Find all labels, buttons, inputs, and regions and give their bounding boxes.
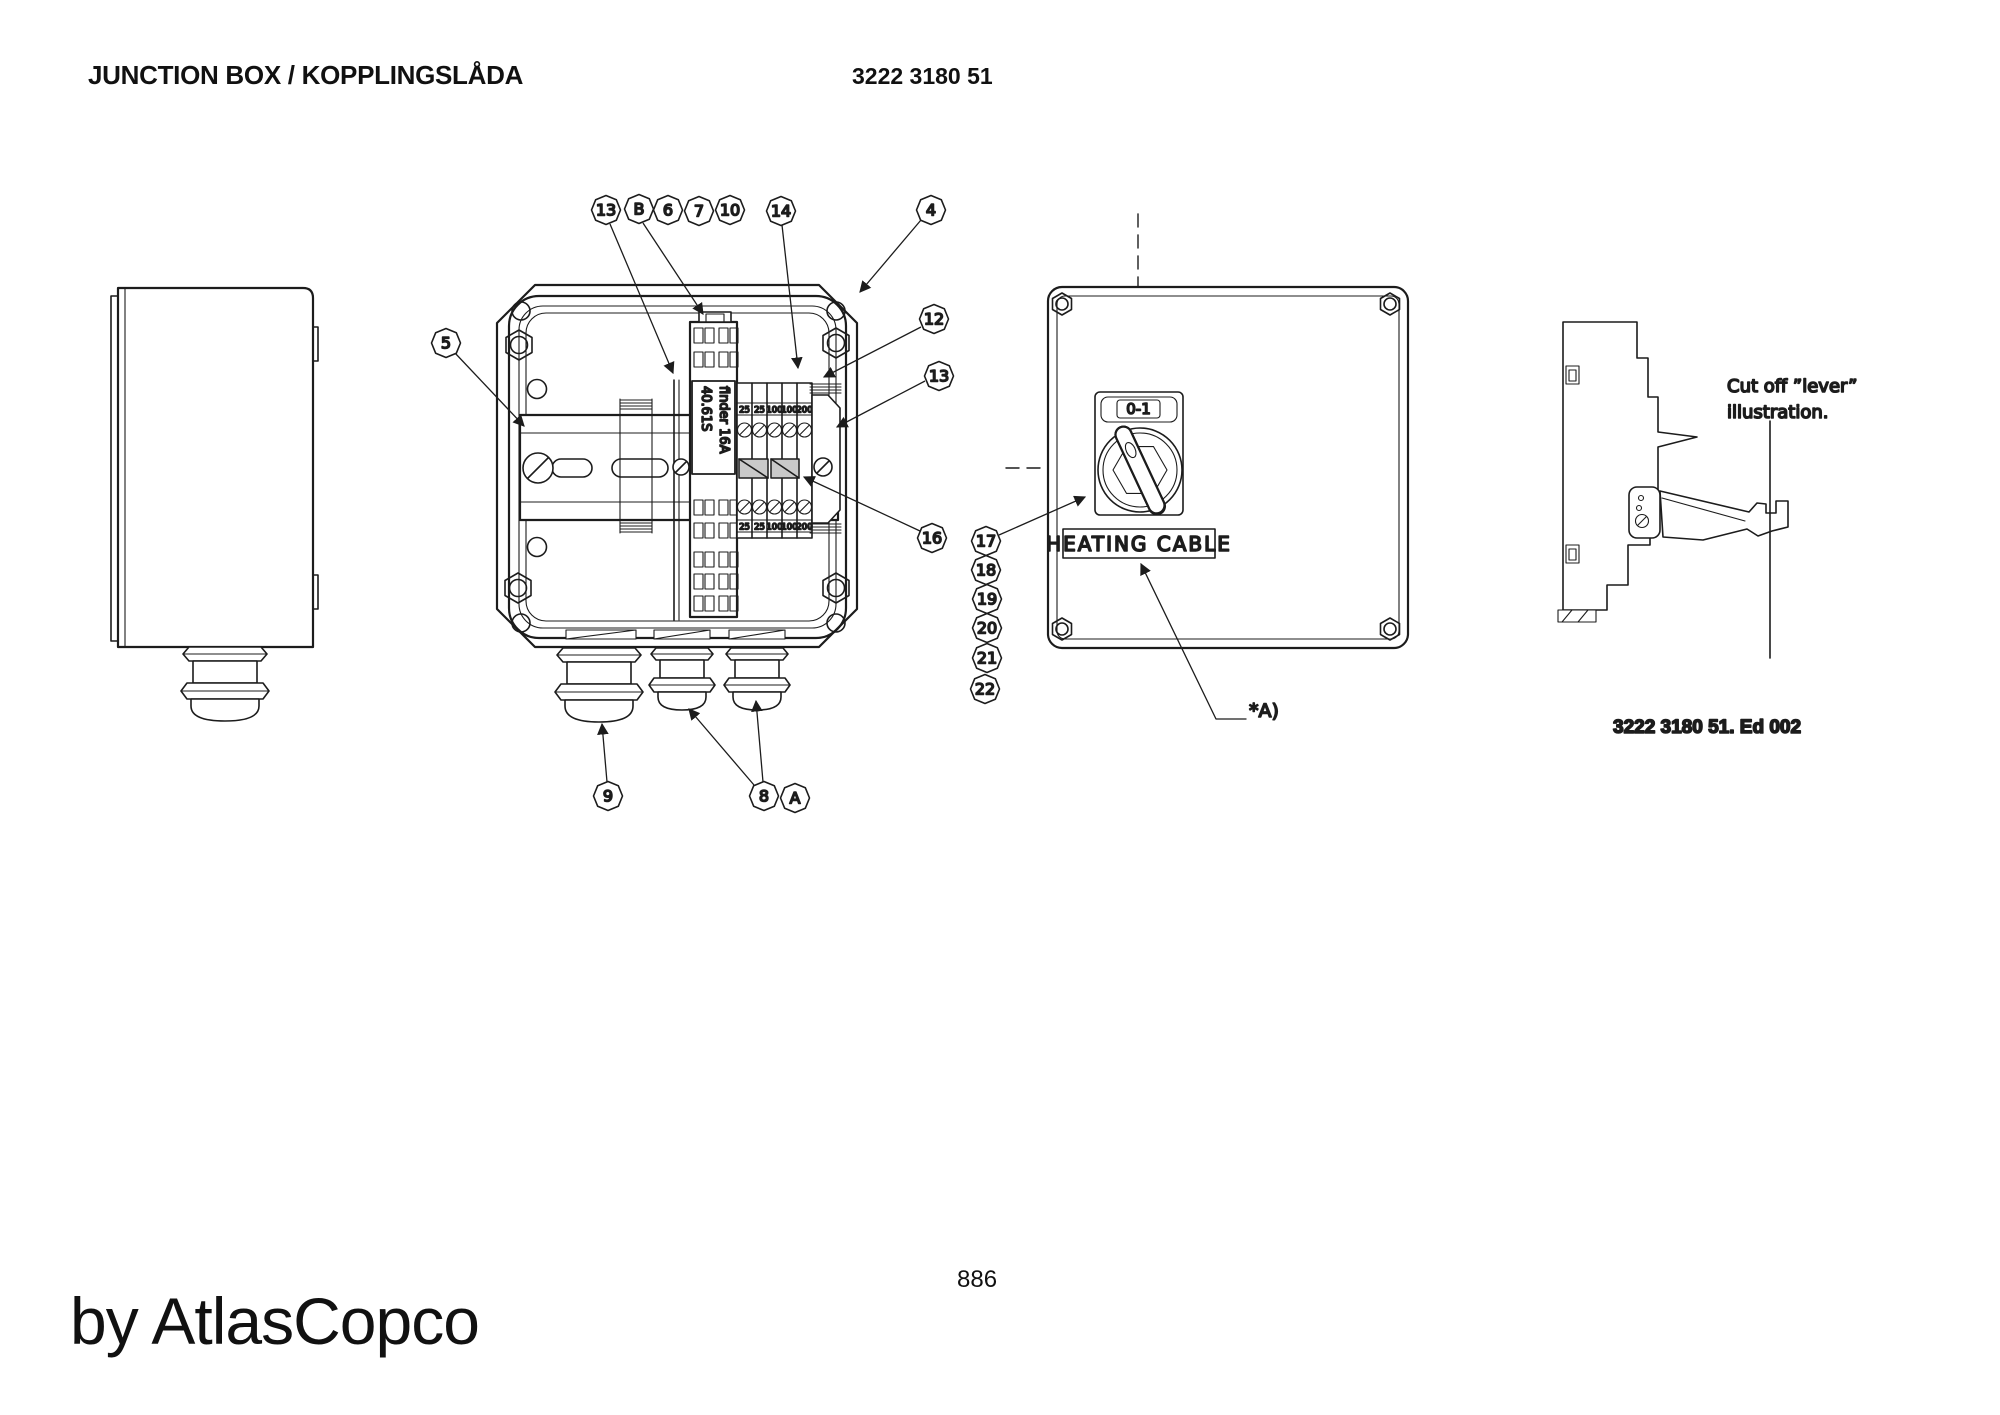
- svg-text:14: 14: [771, 202, 791, 221]
- svg-text:19: 19: [977, 590, 997, 609]
- svg-text:5: 5: [441, 334, 451, 353]
- terminal-label: 200: [796, 406, 812, 416]
- footnote-ref: *A): [1249, 700, 1279, 722]
- box-side-face: [118, 288, 313, 647]
- callout-21: 21: [973, 644, 1002, 673]
- front-view: 0-1 HEATING CABLE *A): [1006, 214, 1408, 722]
- terminal-label: 25: [739, 406, 750, 416]
- svg-text:20: 20: [977, 619, 997, 638]
- callout-12: 12: [920, 305, 949, 334]
- release-lever: [1629, 487, 1788, 540]
- leader-9: [602, 724, 607, 782]
- callout-14: 14: [767, 197, 796, 226]
- callout-B: B: [625, 195, 654, 224]
- leader-4: [860, 220, 921, 292]
- side-view: [111, 288, 318, 721]
- terminal-label: 100: [766, 406, 782, 416]
- jumper: [739, 459, 768, 478]
- callout-7: 7: [685, 197, 714, 226]
- callout-13b: 13: [925, 362, 954, 391]
- callout-13: 13: [592, 196, 621, 225]
- svg-text:7: 7: [694, 202, 704, 221]
- terminal-label: 25: [754, 523, 765, 533]
- terminal-label: 100: [781, 523, 797, 533]
- callout-8: 8: [750, 782, 779, 811]
- switch-label: 0-1: [1126, 400, 1151, 418]
- svg-text:12: 12: [924, 310, 944, 329]
- terminal-label: 25: [739, 523, 750, 533]
- callout-16: 16: [918, 524, 947, 553]
- svg-text:21: 21: [977, 649, 997, 668]
- callout-19: 19: [973, 585, 1002, 614]
- relay-socket-profile: [1563, 322, 1697, 610]
- open-box-view: finder 16A 40.61S: [497, 285, 857, 722]
- svg-text:8: 8: [759, 787, 769, 806]
- svg-text:22: 22: [975, 680, 995, 699]
- relay-label-line1: finder 16A: [716, 386, 731, 454]
- svg-text:9: 9: [603, 787, 613, 806]
- relay-label-line2: 40.61S: [698, 386, 713, 431]
- callout-22: 22: [971, 675, 1000, 704]
- callout-9: 9: [594, 782, 623, 811]
- terminal-label: 100: [781, 406, 797, 416]
- svg-text:6: 6: [663, 201, 673, 220]
- relay-base-screw: [673, 459, 689, 475]
- svg-text:4: 4: [926, 201, 936, 220]
- callout-6: 6: [654, 196, 683, 225]
- callout-20: 20: [973, 614, 1002, 643]
- cable-gland-small: [724, 648, 790, 710]
- hinge-tab: [313, 575, 318, 609]
- callout-5: 5: [432, 329, 461, 358]
- callout-17: 17: [972, 527, 1001, 556]
- svg-text:16: 16: [922, 529, 942, 548]
- jumper: [771, 459, 799, 478]
- terminal-label: 100: [766, 523, 782, 533]
- heating-cable-label: HEATING CABLE: [1046, 529, 1232, 558]
- lever-caption-line2: illustration.: [1727, 402, 1828, 423]
- cable-gland-small: [649, 648, 715, 710]
- rail-screw: [523, 453, 553, 483]
- callout-4: 4: [917, 196, 946, 225]
- svg-text:13: 13: [929, 367, 949, 386]
- catalog-page: JUNCTION BOX / KOPPLINGSLÅDA 3222 3180 5…: [0, 0, 2000, 1415]
- hinge-tab: [313, 327, 318, 361]
- gland-pads: [566, 630, 785, 639]
- end-plate: [812, 395, 840, 523]
- edition-text: 3222 3180 51. Ed 002: [1613, 717, 1801, 738]
- callout-18: 18: [972, 556, 1001, 585]
- socket-foot: [1558, 610, 1596, 622]
- callout-10: 10: [716, 196, 745, 225]
- panel-label: HEATING CABLE: [1046, 532, 1232, 556]
- lever-view: Cut off ”lever” illustration. 3222 3180 …: [1558, 322, 1858, 738]
- technical-drawing: finder 16A 40.61S: [0, 0, 2000, 1415]
- terminal-label: 25: [754, 406, 765, 416]
- leader-8b: [756, 701, 763, 782]
- lever-caption-line1: Cut off ”lever”: [1727, 376, 1858, 397]
- cable-gland-large: [555, 648, 643, 722]
- svg-text:10: 10: [720, 201, 740, 220]
- cable-gland: [181, 647, 269, 721]
- svg-text:B: B: [634, 200, 645, 219]
- leader-8a: [689, 709, 754, 785]
- svg-text:17: 17: [976, 532, 996, 551]
- callout-A: A: [781, 784, 810, 813]
- svg-text:18: 18: [976, 561, 996, 580]
- svg-text:13: 13: [596, 201, 616, 220]
- terminal-block: 25 25 100 100 200 25 25 100 100 200: [737, 383, 841, 538]
- svg-text:A: A: [790, 789, 801, 808]
